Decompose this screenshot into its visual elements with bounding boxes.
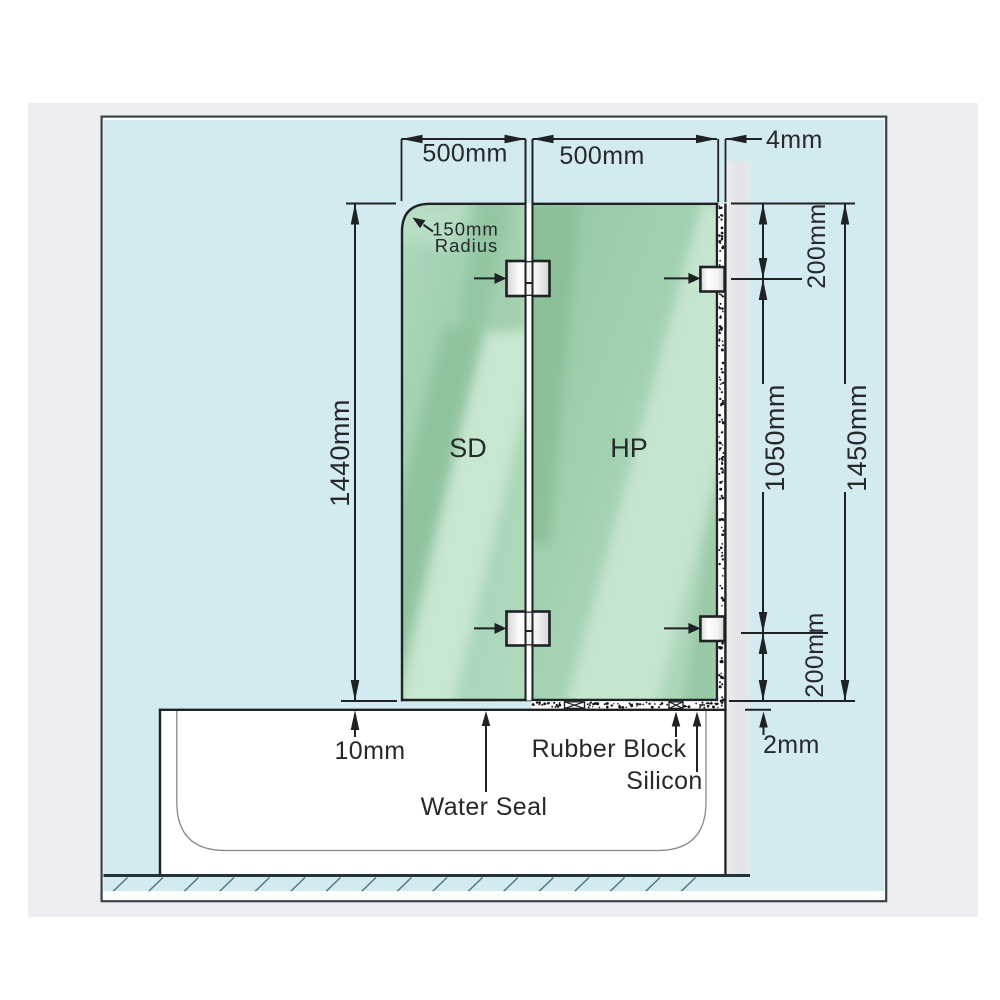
svg-text:SD: SD (449, 433, 487, 463)
svg-text:Radius: Radius (435, 235, 499, 256)
svg-text:1050mm: 1050mm (760, 384, 790, 491)
svg-text:1450mm: 1450mm (842, 384, 872, 491)
svg-text:200mm: 200mm (803, 203, 831, 288)
svg-text:Rubber Block: Rubber Block (532, 735, 687, 763)
svg-text:Silicon: Silicon (626, 767, 702, 795)
svg-text:1440mm: 1440mm (325, 399, 355, 506)
svg-text:500mm: 500mm (422, 140, 507, 168)
svg-text:500mm: 500mm (559, 142, 644, 170)
svg-text:10mm: 10mm (334, 737, 405, 765)
svg-text:Water Seal: Water Seal (421, 793, 548, 821)
svg-text:4mm: 4mm (766, 126, 823, 154)
svg-text:HP: HP (610, 433, 648, 463)
svg-text:2mm: 2mm (763, 731, 820, 759)
svg-text:200mm: 200mm (801, 612, 829, 697)
